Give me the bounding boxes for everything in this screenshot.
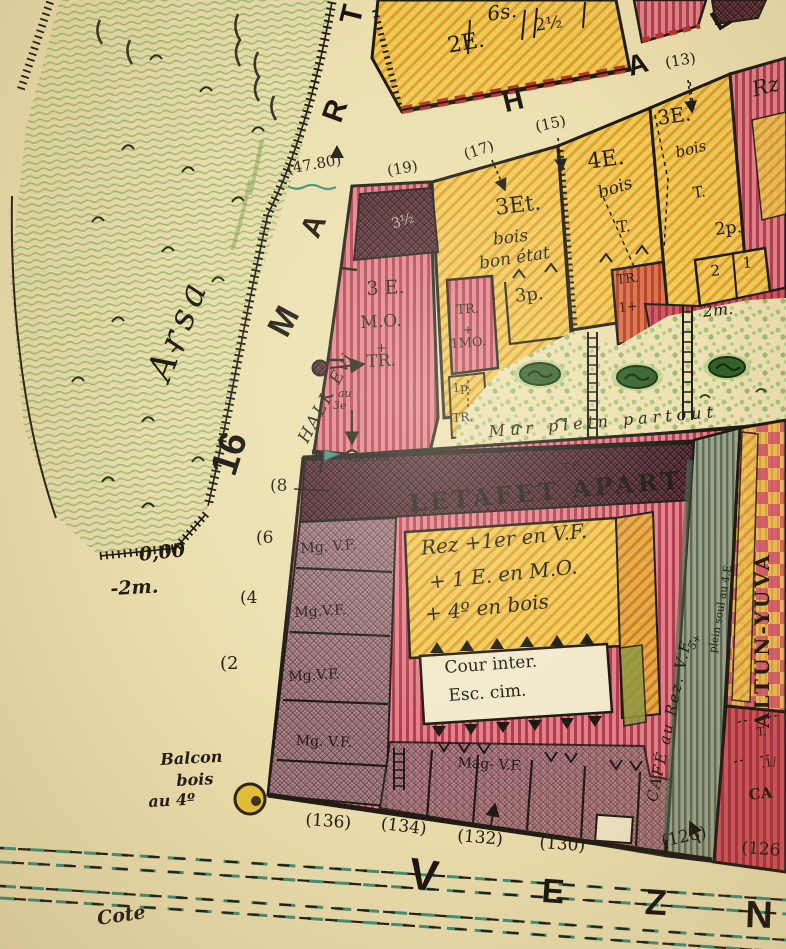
magazine-label: Mag- V.F. (457, 756, 523, 773)
bldg-floors: 4E. (586, 147, 626, 174)
box-label: TR. (456, 302, 479, 317)
street-entry-box (595, 815, 633, 843)
bldg-note: T. (616, 218, 632, 236)
bldg-material: TR. (366, 352, 396, 371)
bldg-note: T. (692, 184, 707, 201)
elevation-zero: 0,00 (138, 541, 186, 565)
balcony-note: Balcon (160, 749, 223, 768)
corner-label: CA (748, 786, 773, 803)
bldg-annex: 2p. (714, 219, 743, 239)
house-number: (130) (539, 835, 586, 855)
corner-label: T. (756, 725, 767, 738)
box-label: TR. (616, 272, 640, 287)
bush-icon (611, 363, 663, 391)
bldg-note: 3e (333, 400, 347, 411)
bldg-floors: 3Et. (494, 192, 542, 219)
bush-icon (514, 360, 566, 388)
street-vezn-letter: N (745, 896, 774, 935)
benchmark-underline (288, 185, 336, 189)
house-number: (4 (240, 590, 257, 607)
box-label: 1+ (618, 300, 638, 315)
vacant-lot-arsa (10, 0, 332, 557)
box-label: + (463, 324, 473, 336)
magazine-label: Mg.V.F. (294, 603, 347, 620)
bldg-annex: 3p. (514, 285, 544, 306)
box-label: 1p. (452, 381, 472, 394)
house-number: (8 (270, 478, 287, 495)
bldg-note: T.F. (562, 460, 582, 473)
bldg-floors: 3 E. (366, 278, 405, 299)
house-number: (132) (457, 828, 504, 849)
bldg-material: M.O. (360, 313, 402, 332)
corner-label: .1/ (760, 755, 777, 770)
bldg-note: 2½ (534, 14, 563, 35)
house-number: (136) (305, 812, 352, 832)
balcony-note: au 4º (148, 792, 195, 810)
garden-note: 2m. (702, 301, 734, 320)
magazine-label: Mg. V.F. (300, 538, 357, 556)
vezn-street-lines (0, 848, 786, 949)
street-vezn-letter: V (406, 852, 441, 900)
box-label: 1MO. (450, 336, 486, 351)
box-label: TR. (452, 411, 474, 424)
insurance-map: 16 M A R T H A L V E Z N Cote Arsa 0,00 … (0, 0, 786, 949)
street-vezn-letter: E (541, 874, 566, 909)
bldg-note: 6s. (486, 0, 518, 24)
bldg-cell: 1 (742, 255, 753, 271)
balcony-note: bois (176, 771, 214, 789)
bush-icon (703, 354, 751, 380)
altun-yuva-label: ALTUN-YUVA (752, 552, 772, 728)
house-number: (2 (220, 655, 238, 673)
magazine-label: Mg. V.F. (296, 734, 353, 750)
magazine-label: Mg.V.F. (288, 667, 341, 684)
balcony-marker-icon (235, 784, 265, 814)
house-number: (126 (741, 840, 781, 860)
bldg-cell: 2 (710, 263, 721, 279)
elevation-minus2: -2m. (110, 577, 159, 598)
casino-label: Casino (348, 450, 390, 464)
halkevi-marker-icon (313, 361, 328, 376)
bldg-note: au (338, 388, 352, 399)
house-number: (6 (256, 530, 273, 547)
bldg-floors: 3E. (656, 103, 692, 127)
street-vezn-letter: Z (644, 884, 668, 921)
